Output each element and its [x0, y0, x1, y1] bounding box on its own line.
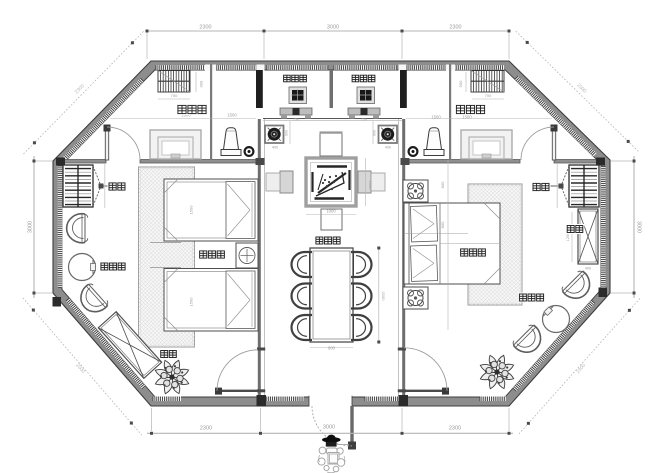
- svg-text:500: 500: [458, 80, 463, 87]
- svg-text:1500: 1500: [189, 297, 194, 307]
- svg-text:2300: 2300: [200, 426, 212, 432]
- svg-text:500: 500: [199, 81, 204, 88]
- svg-text:700: 700: [171, 93, 178, 98]
- svg-text:2200: 2200: [381, 292, 386, 302]
- svg-text:1000: 1000: [368, 181, 373, 191]
- svg-text:1500: 1500: [431, 115, 441, 120]
- svg-text:700: 700: [485, 93, 492, 98]
- svg-text:400: 400: [585, 267, 591, 271]
- svg-text:800: 800: [440, 181, 445, 188]
- svg-text:2300: 2300: [449, 25, 461, 31]
- svg-text:900: 900: [328, 346, 336, 351]
- svg-text:1000: 1000: [326, 209, 336, 214]
- svg-text:400: 400: [385, 146, 391, 150]
- svg-text:400: 400: [272, 146, 278, 150]
- svg-text:3000: 3000: [323, 424, 335, 430]
- svg-text:600: 600: [373, 130, 377, 136]
- svg-text:3000: 3000: [636, 221, 642, 233]
- svg-text:1500: 1500: [227, 113, 237, 118]
- svg-text:1500: 1500: [462, 115, 472, 120]
- svg-text:750: 750: [293, 118, 299, 122]
- svg-text:2300: 2300: [449, 426, 461, 432]
- svg-text:1200: 1200: [566, 233, 570, 241]
- svg-text:3000: 3000: [28, 221, 34, 233]
- svg-text:750: 750: [361, 118, 367, 122]
- svg-text:1500: 1500: [189, 205, 194, 215]
- svg-text:600: 600: [285, 130, 289, 136]
- svg-text:2300: 2300: [199, 25, 211, 31]
- svg-text:800: 800: [440, 221, 445, 228]
- svg-text:3000: 3000: [327, 25, 339, 31]
